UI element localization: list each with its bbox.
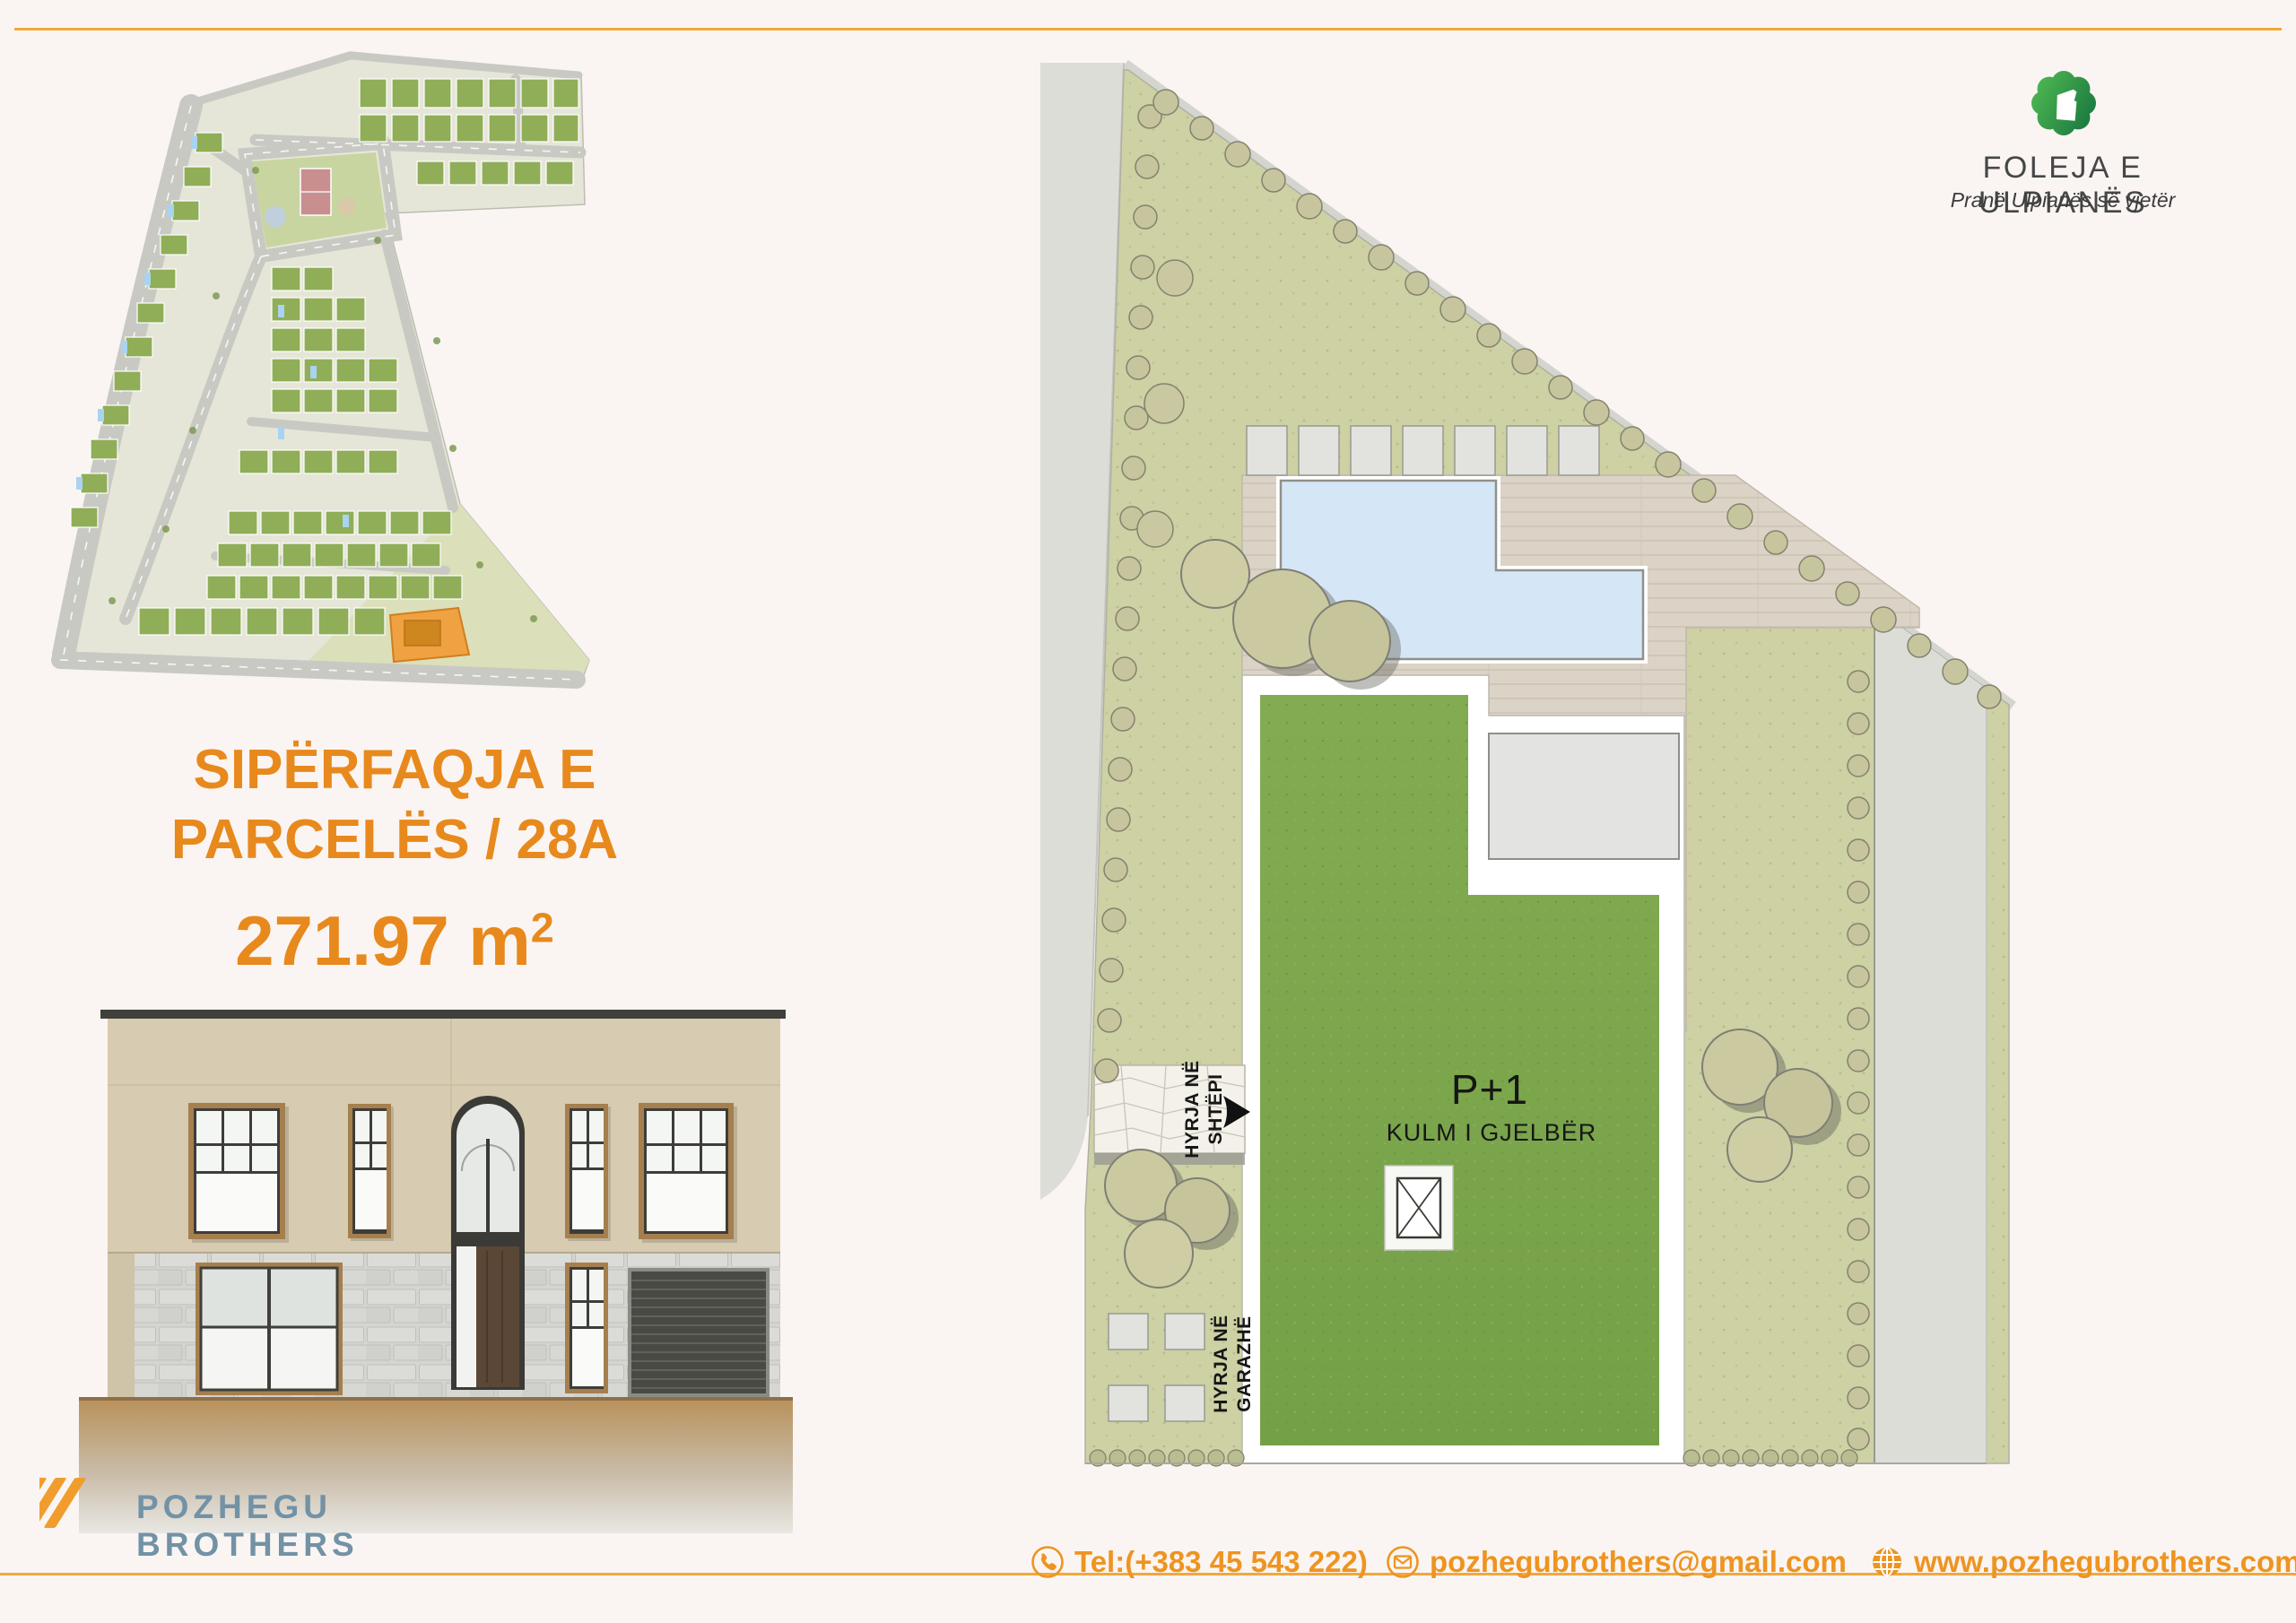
window-upper-narrow-left <box>348 1104 394 1241</box>
garage-door <box>628 1268 770 1397</box>
parcel-area-exponent: 2 <box>531 904 554 950</box>
house-entry-label: HYRJA NË SHTËPI <box>1139 1042 1270 1176</box>
garage-entry-label: HYRJA NË GARAZHË <box>1168 1297 1299 1431</box>
parcel-title-line1: SIPËRFAQJA E <box>126 735 664 805</box>
parcel-plan: P+1 KULM I GJELBËR HYRJA NË SHTËPI HYRJA… <box>1031 54 2081 1533</box>
stepping-pavers <box>1247 426 1599 475</box>
globe-icon <box>1869 1544 1905 1580</box>
contact-phone[interactable]: Tel:(+383 45 543 222) <box>1030 1544 1368 1580</box>
phone-icon <box>1030 1544 1065 1580</box>
highlighted-parcel-28a <box>390 608 469 662</box>
footer-brand-line2: BROTHERS <box>136 1526 359 1564</box>
footer-brand-line1: POZHEGU <box>136 1488 332 1526</box>
brand-tagline: Pranë Ulpianës së vjetër <box>1901 188 2224 213</box>
flower-logo-icon <box>2023 63 2104 143</box>
garage-entry-line2: GARAZHË <box>1234 1315 1255 1411</box>
website-text: www.pozhegubrothers.com <box>1914 1545 2296 1579</box>
parcel-area: 271.97 m2 <box>126 900 664 982</box>
floors-label: P+1 <box>1400 1065 1579 1114</box>
brochure-page: SIPËRFAQJA E PARCELËS / 28A 271.97 m2 <box>0 0 2296 1623</box>
window-lower-narrow <box>565 1263 608 1393</box>
parcel-title-line2: PARCELËS / 28A <box>126 805 664 875</box>
parcel-title-block: SIPËRFAQJA E PARCELËS / 28A 271.97 m2 <box>126 735 664 982</box>
arched-entry-door <box>451 1096 525 1390</box>
window-upper-right <box>639 1103 737 1243</box>
master-plan-illustration <box>31 27 605 699</box>
email-text: pozhegubrothers@gmail.com <box>1430 1545 1847 1579</box>
window-upper-left <box>188 1103 289 1243</box>
sliding-glass-door <box>196 1263 343 1395</box>
parcel-area-number: 271.97 m <box>235 901 531 980</box>
skylight <box>1385 1166 1453 1250</box>
house-elevation-illustration <box>54 986 861 1542</box>
terrace <box>1489 733 1679 859</box>
phone-text: Tel:(+383 45 543 222) <box>1074 1545 1368 1579</box>
contact-website[interactable]: www.pozhegubrothers.com <box>1869 1544 2296 1580</box>
green-roof-label: KULM I GJELBËR <box>1357 1119 1626 1147</box>
house-entry-line2: SHTËPI <box>1205 1074 1226 1145</box>
mail-icon <box>1385 1544 1421 1580</box>
slashes-logo-icon <box>39 1474 138 1533</box>
garage-entry-line1: HYRJA NË <box>1211 1315 1231 1412</box>
house-entry-line1: HYRJA NË <box>1182 1060 1203 1158</box>
window-upper-narrow-right <box>565 1104 611 1241</box>
contact-email[interactable]: pozhegubrothers@gmail.com <box>1385 1544 1847 1580</box>
